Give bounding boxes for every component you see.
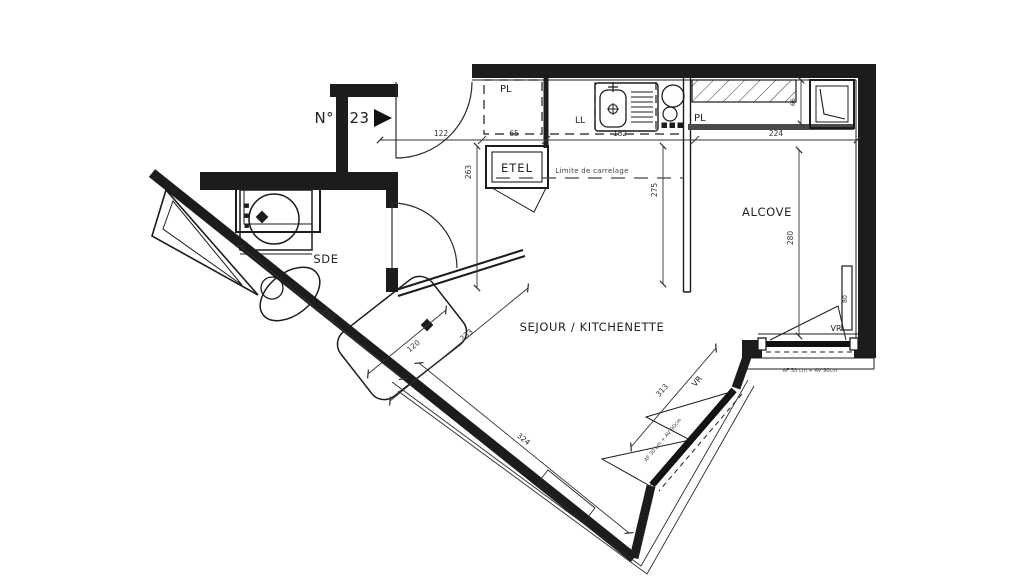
label-ll-washing-machine: LL — [575, 116, 585, 126]
sejour-window — [602, 390, 742, 491]
dim-right-window: 80 — [842, 295, 849, 303]
washbasin — [240, 190, 312, 254]
dim-entry-width: 122 — [434, 129, 449, 138]
floor-plan-drawing: 122 65 182 224 263 275 280 66 80 324 261… — [0, 0, 1024, 581]
room-labels: SEJOUR / KITCHENETTE ALCOVE SDE — [313, 205, 792, 334]
kitchen-sink — [595, 82, 658, 131]
closet-hatch — [692, 80, 796, 102]
entry-door — [396, 82, 472, 158]
room-label-sejour: SEJOUR / KITCHENETTE — [520, 320, 665, 334]
dim-sejour-wall: 324 — [515, 431, 532, 447]
label-etel-panel: ETEL — [501, 161, 533, 175]
floor-plan-sheet: 122 65 182 224 263 275 280 66 80 324 261… — [0, 0, 1024, 581]
sde-door — [392, 203, 457, 268]
dim-tile-depth: 275 — [650, 183, 659, 198]
dim-closet-width: 65 — [509, 129, 519, 138]
closet-entry — [484, 80, 542, 134]
dim-shelf-depth: 66 — [790, 98, 797, 106]
unit-number: N° 123 — [314, 109, 369, 127]
dim-alcove-width: 224 — [769, 129, 784, 138]
label-vr-alcove: VR — [830, 324, 841, 333]
dim-sejour-window: 313 — [654, 382, 670, 399]
room-label-alcove: ALCOVE — [742, 205, 792, 219]
etel-box — [486, 146, 548, 212]
dim-shower-length: 120 — [405, 338, 422, 354]
alcove-fixtures — [688, 80, 874, 369]
corner-cupboard — [810, 80, 854, 128]
tile-limit-label: Limite de carrelage — [555, 167, 628, 175]
dimension-labels: 122 65 182 224 263 275 280 66 80 324 261… — [321, 98, 849, 447]
alcove-window-note: AF 30 cm + AV 90cm — [783, 368, 838, 374]
dim-kitchen-width: 182 — [613, 129, 628, 138]
dim-entry-depth: 263 — [464, 165, 473, 180]
toilet — [250, 257, 329, 332]
alcove-window — [746, 306, 874, 369]
cooktop — [662, 85, 684, 128]
label-pl-entry: PL — [500, 84, 512, 95]
drainboard — [631, 92, 653, 122]
entry-arrow-icon — [374, 109, 392, 127]
unit-label-group: N° 123 — [314, 109, 392, 127]
dim-sde-diagonal: 233 — [458, 327, 475, 343]
label-pl-alcove: PL — [694, 113, 706, 124]
doors — [392, 82, 472, 268]
dim-alcove-depth: 280 — [786, 231, 795, 246]
room-label-sde: SDE — [313, 252, 338, 266]
